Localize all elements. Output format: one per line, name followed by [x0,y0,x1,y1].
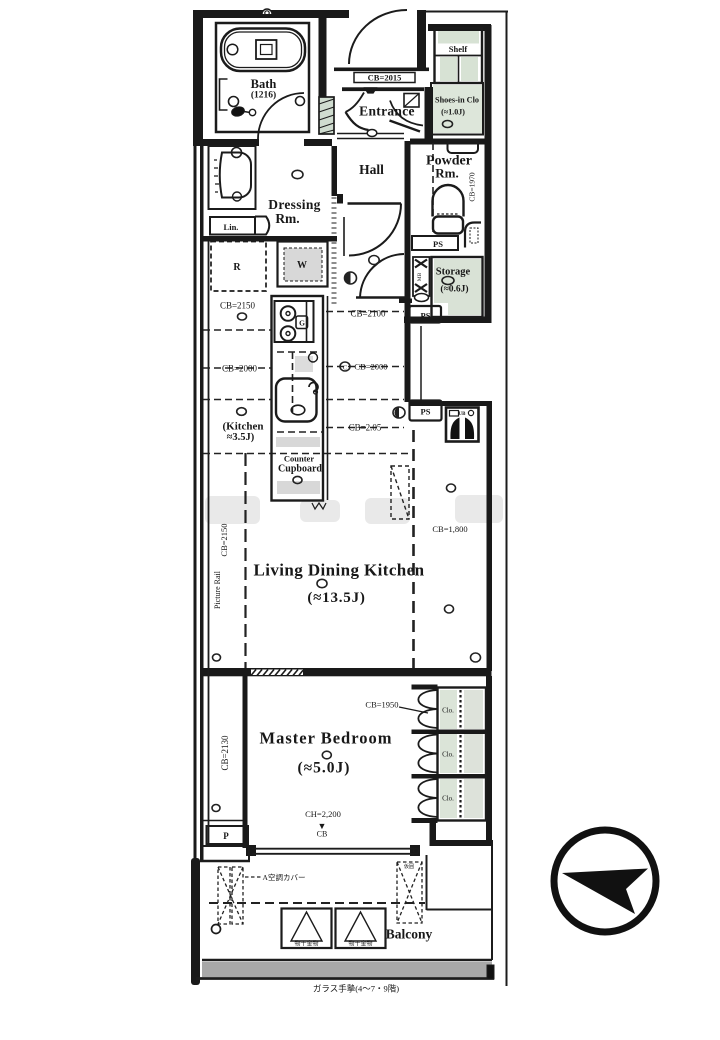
svg-text:Shoes-in Clo: Shoes-in Clo [435,96,479,105]
svg-text:(≈0.6J): (≈0.6J) [440,284,468,295]
svg-text:CB=2130: CB=2130 [220,735,230,771]
svg-text:Counter: Counter [284,454,314,464]
svg-text:(≈1.0J): (≈1.0J) [441,108,465,117]
svg-text:Balcony: Balcony [386,927,433,942]
svg-text:PS: PS [421,407,431,417]
svg-text:Picture Rail: Picture Rail [213,570,222,609]
svg-text:ガラス手摰(4～7・9階): ガラス手摰(4～7・9階) [313,984,399,994]
svg-text:CB=2015: CB=2015 [368,73,402,83]
svg-text:CB=1,800: CB=1,800 [432,524,467,534]
svg-text:(≈5.0J): (≈5.0J) [298,760,351,777]
svg-text:R: R [233,262,241,273]
svg-text:P: P [223,831,229,841]
svg-text:Dressing: Dressing [268,197,320,212]
svg-text:UB: UB [459,412,467,417]
svg-text:Clo.: Clo. [442,707,454,715]
svg-text:Hall: Hall [359,162,384,177]
svg-text:CB=2000: CB=2000 [354,362,387,372]
svg-text:Living Dining Kitchen: Living Dining Kitchen [254,561,425,580]
svg-text:Clo.: Clo. [442,795,454,803]
svg-text:(≈13.5J): (≈13.5J) [307,590,365,606]
svg-text:(Kitchen: (Kitchen [223,421,264,433]
svg-text:Shelf: Shelf [449,44,468,54]
svg-text:MB: MB [417,272,423,281]
svg-text:物干金物: 物干金物 [294,940,318,948]
svg-text:物干金物: 物干金物 [348,940,372,948]
svg-text:G: G [299,319,305,328]
svg-text:Cupboard: Cupboard [278,464,322,475]
svg-text:Bath: Bath [251,77,277,91]
svg-text:CH=2,200: CH=2,200 [305,809,341,819]
svg-text:CB=1950: CB=1950 [365,700,398,710]
svg-text:Master Bedroom: Master Bedroom [260,729,393,748]
svg-text:仮囲: 仮囲 [404,863,414,870]
svg-text:A空調カバー: A空調カバー [263,872,306,882]
svg-text:Entrance: Entrance [359,104,415,119]
svg-text:CB: CB [317,830,328,839]
svg-text:≈3.5J): ≈3.5J) [227,432,255,443]
svg-text:CB=2.05: CB=2.05 [349,423,382,433]
svg-text:CB=2150: CB=2150 [219,523,229,556]
svg-text:(1216): (1216) [251,90,276,101]
svg-text:Storage: Storage [436,267,471,278]
svg-text:C: C [343,365,347,372]
svg-text:Rm.: Rm. [435,166,458,181]
svg-text:W: W [297,260,307,271]
svg-text:PS: PS [433,239,443,249]
svg-text:CB=2100: CB=2100 [350,309,386,319]
svg-text:CB=1970: CB=1970 [468,172,477,201]
svg-text:Lin.: Lin. [224,222,239,232]
svg-text:CB=2000: CB=2000 [222,364,258,374]
svg-text:Rm.: Rm. [275,211,299,226]
svg-text:Clo.: Clo. [442,751,454,759]
svg-text:PS: PS [421,311,431,321]
svg-text:CB=2150: CB=2150 [220,301,256,311]
